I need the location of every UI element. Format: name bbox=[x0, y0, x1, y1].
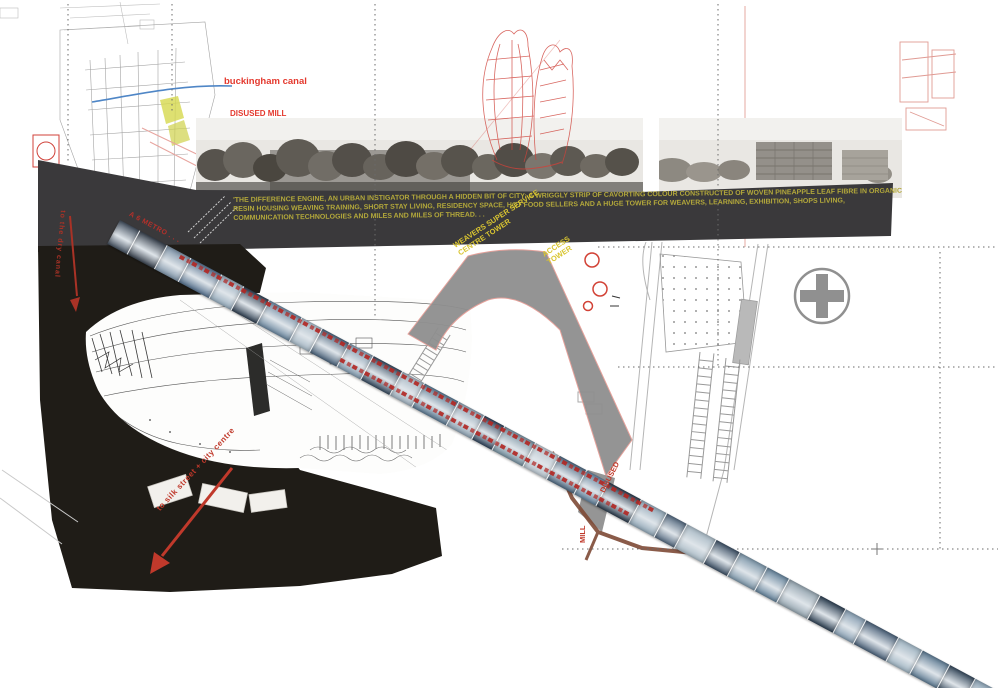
red-circles bbox=[584, 253, 621, 311]
drawing-base bbox=[0, 0, 1000, 688]
circle-cross-symbol bbox=[795, 269, 849, 323]
map-sketch-spill bbox=[0, 2, 160, 44]
red-elevation-sketch bbox=[900, 42, 956, 130]
label-mill-fragment: MILL bbox=[578, 526, 587, 544]
architecture-panel: 'THE DIFFERENCE ENGINE, AN URBAN INSTIGA… bbox=[0, 0, 1000, 688]
label-disused-mill: DISUSED MILL bbox=[230, 109, 286, 118]
label-buckingham-canal: buckingham canal bbox=[224, 76, 307, 87]
orchard-plan bbox=[660, 254, 747, 352]
